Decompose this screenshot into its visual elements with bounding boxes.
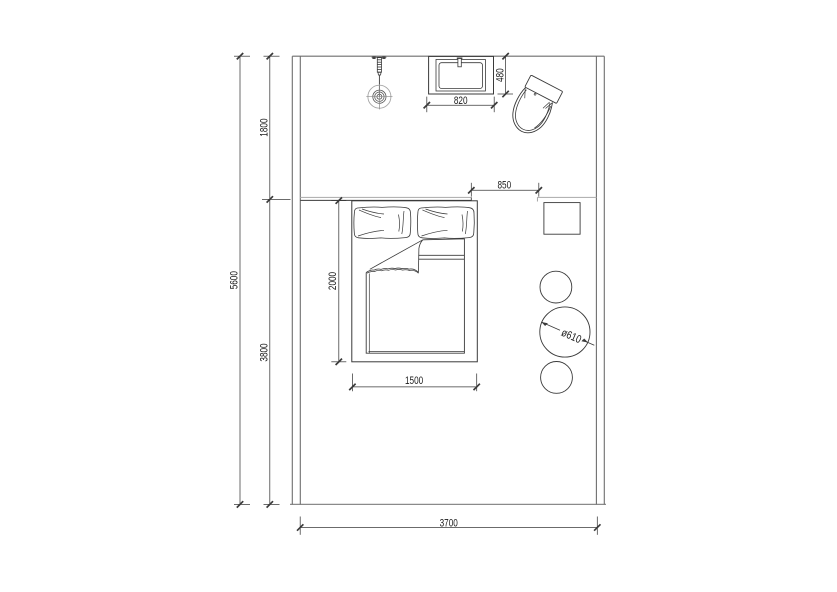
svg-text:1800: 1800	[259, 119, 271, 137]
svg-text:3800: 3800	[258, 343, 270, 361]
svg-text:3700: 3700	[440, 518, 458, 530]
svg-text:5600: 5600	[228, 271, 240, 289]
svg-text:480: 480	[494, 68, 506, 82]
svg-text:850: 850	[497, 179, 511, 191]
svg-text:2000: 2000	[327, 272, 339, 290]
svg-text:1500: 1500	[405, 375, 423, 387]
svg-text:820: 820	[454, 95, 468, 107]
